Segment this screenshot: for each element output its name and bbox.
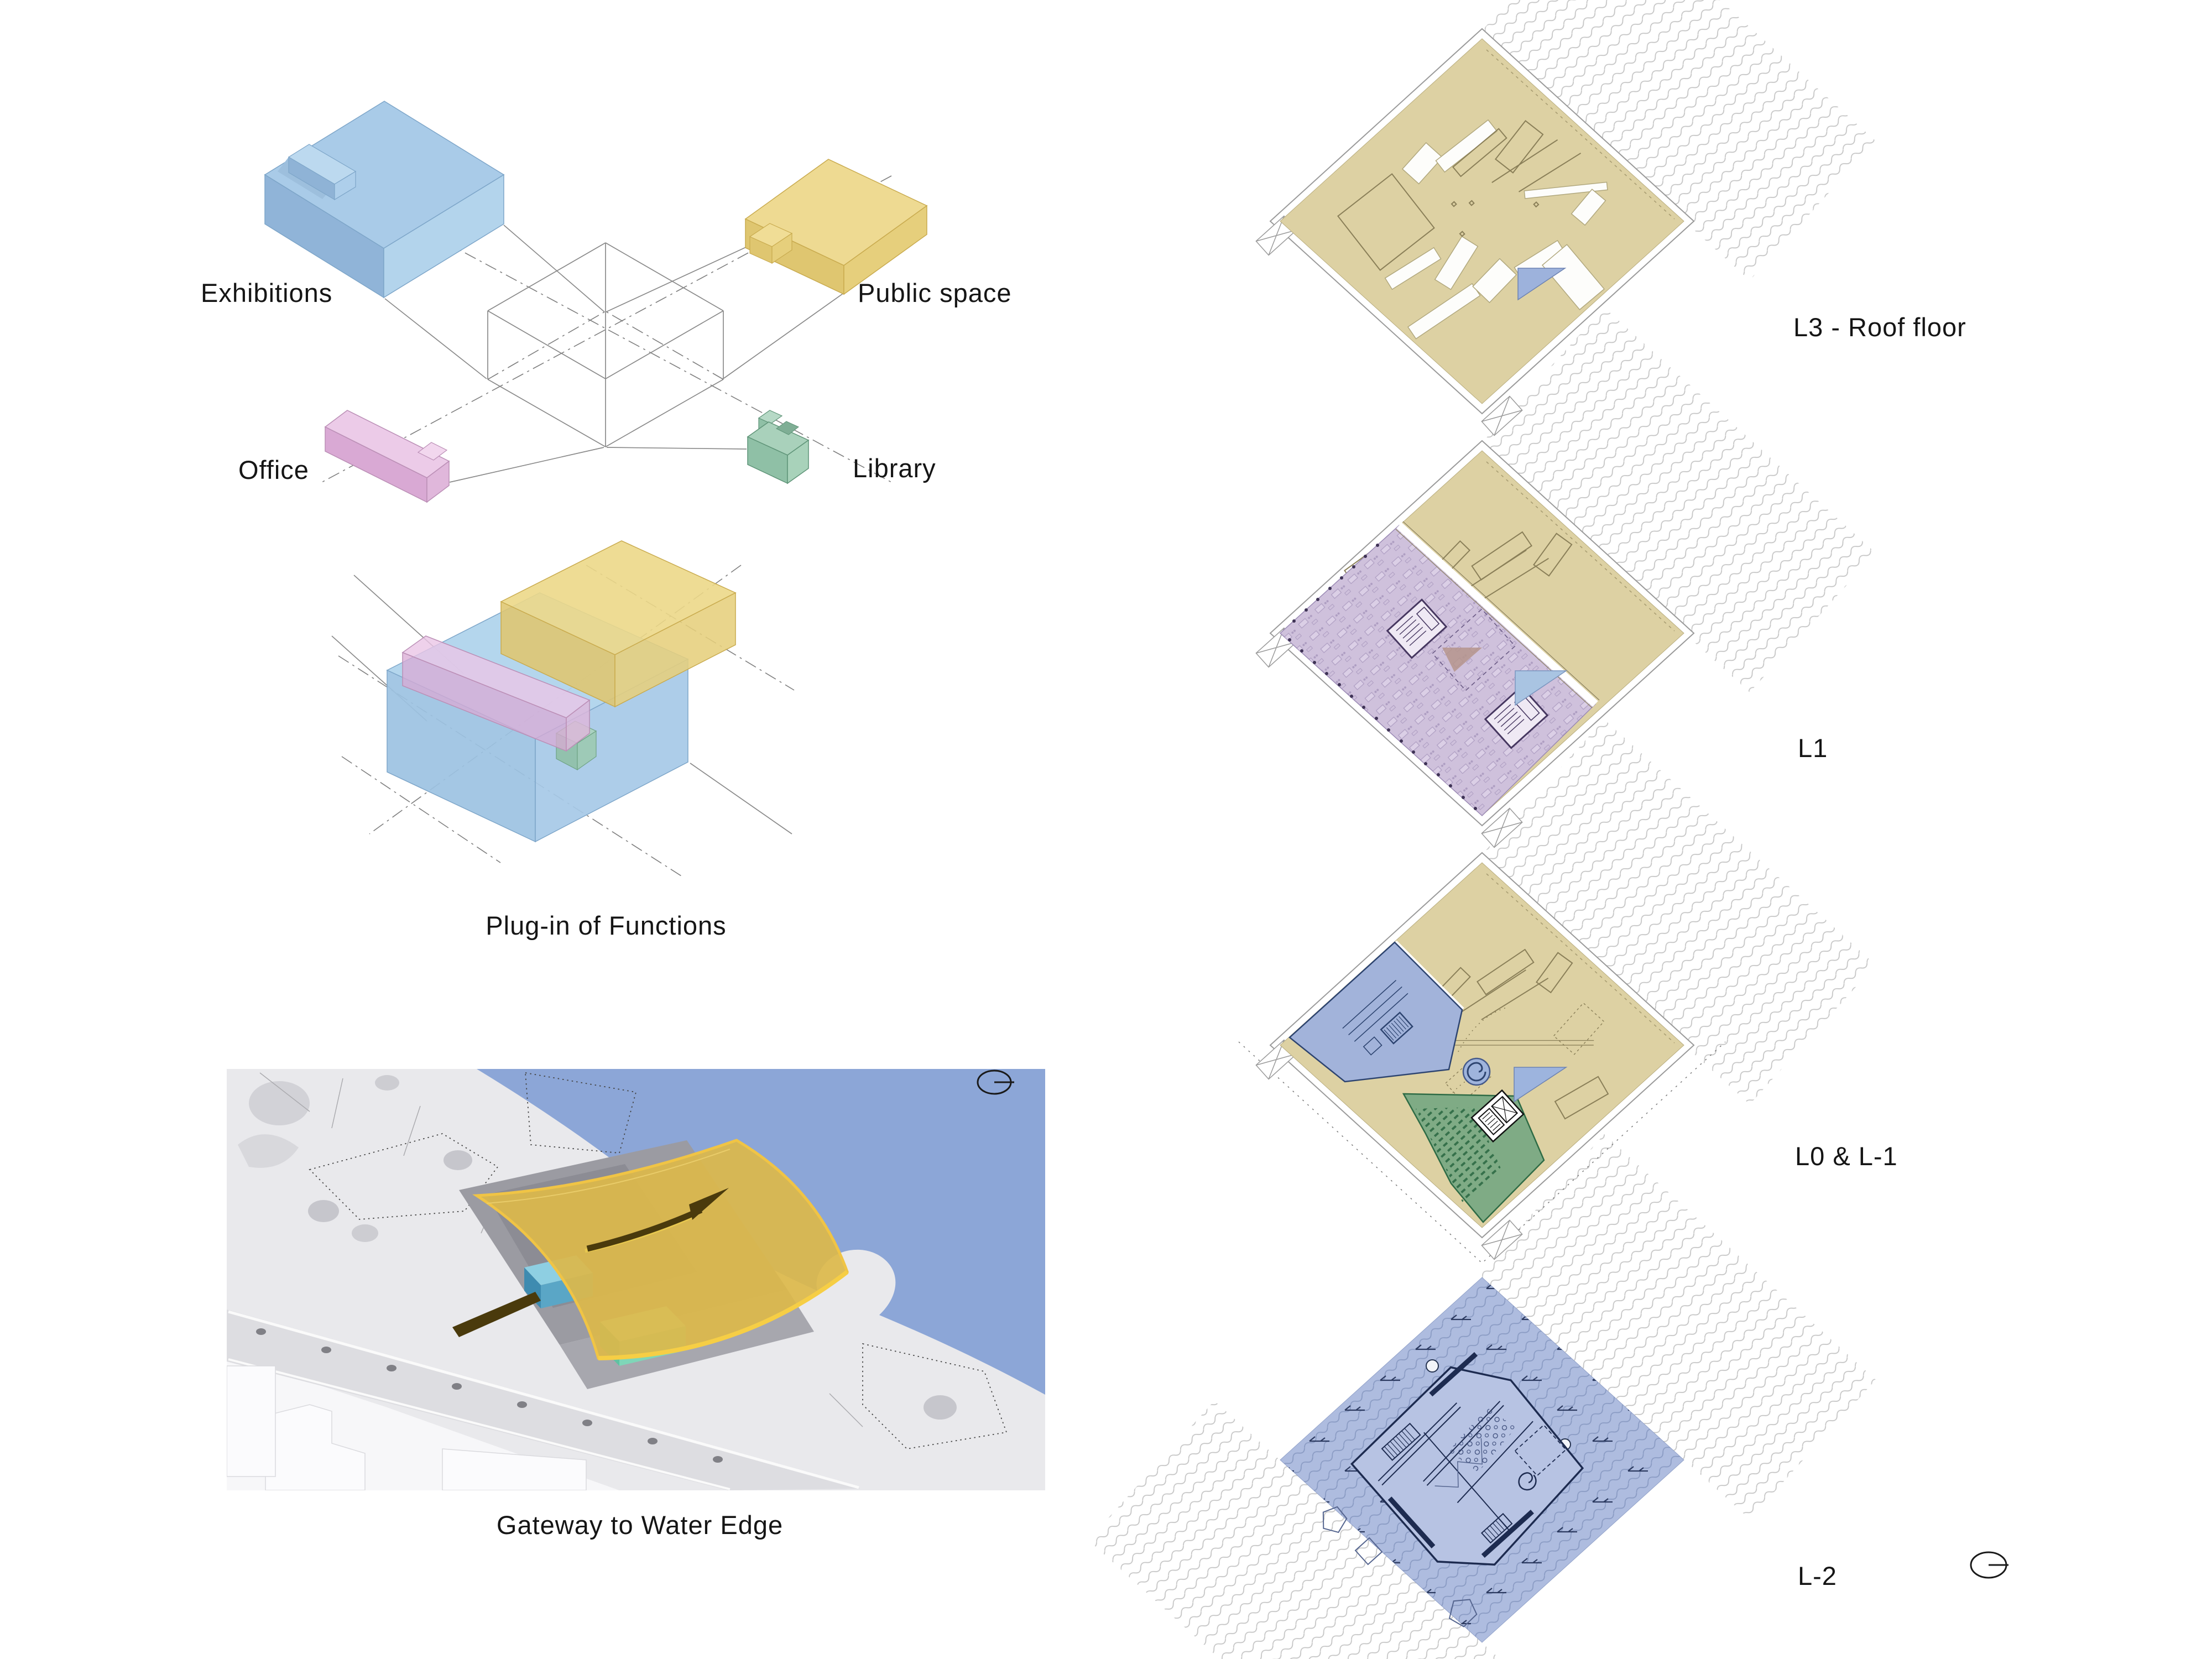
- floor-plan-l0-label: L0 & L-1: [1795, 1141, 1898, 1171]
- spiral-stair: [1463, 1058, 1490, 1085]
- office-massing: [325, 410, 449, 502]
- floor-plan-l1-label: L1: [1798, 733, 1828, 763]
- exhibitions-label: Exhibitions: [201, 278, 332, 307]
- library-label: Library: [853, 453, 936, 483]
- exhibitions-massing: [265, 101, 504, 298]
- floor-plan-lminus2-label: L-2: [1798, 1561, 1837, 1590]
- gateway-site-render: [227, 1069, 1045, 1490]
- gateway-caption: Gateway to Water Edge: [497, 1510, 783, 1540]
- north-compass-icon: [1971, 1552, 2008, 1578]
- function-diagram: Exhibitions Public space Office Library: [201, 101, 1012, 502]
- plugin-diagram: Plug-in of Functions: [332, 541, 794, 940]
- site-cube-wireframe: [488, 243, 723, 447]
- floor-plan-l3-label: L3 - Roof floor: [1793, 312, 1966, 342]
- board-canvas: Exhibitions Public space Office Library: [0, 0, 2212, 1659]
- office-label: Office: [238, 455, 309, 484]
- public-space-massing: [745, 159, 927, 294]
- public-space-label: Public space: [858, 278, 1012, 307]
- plugin-caption: Plug-in of Functions: [486, 911, 726, 940]
